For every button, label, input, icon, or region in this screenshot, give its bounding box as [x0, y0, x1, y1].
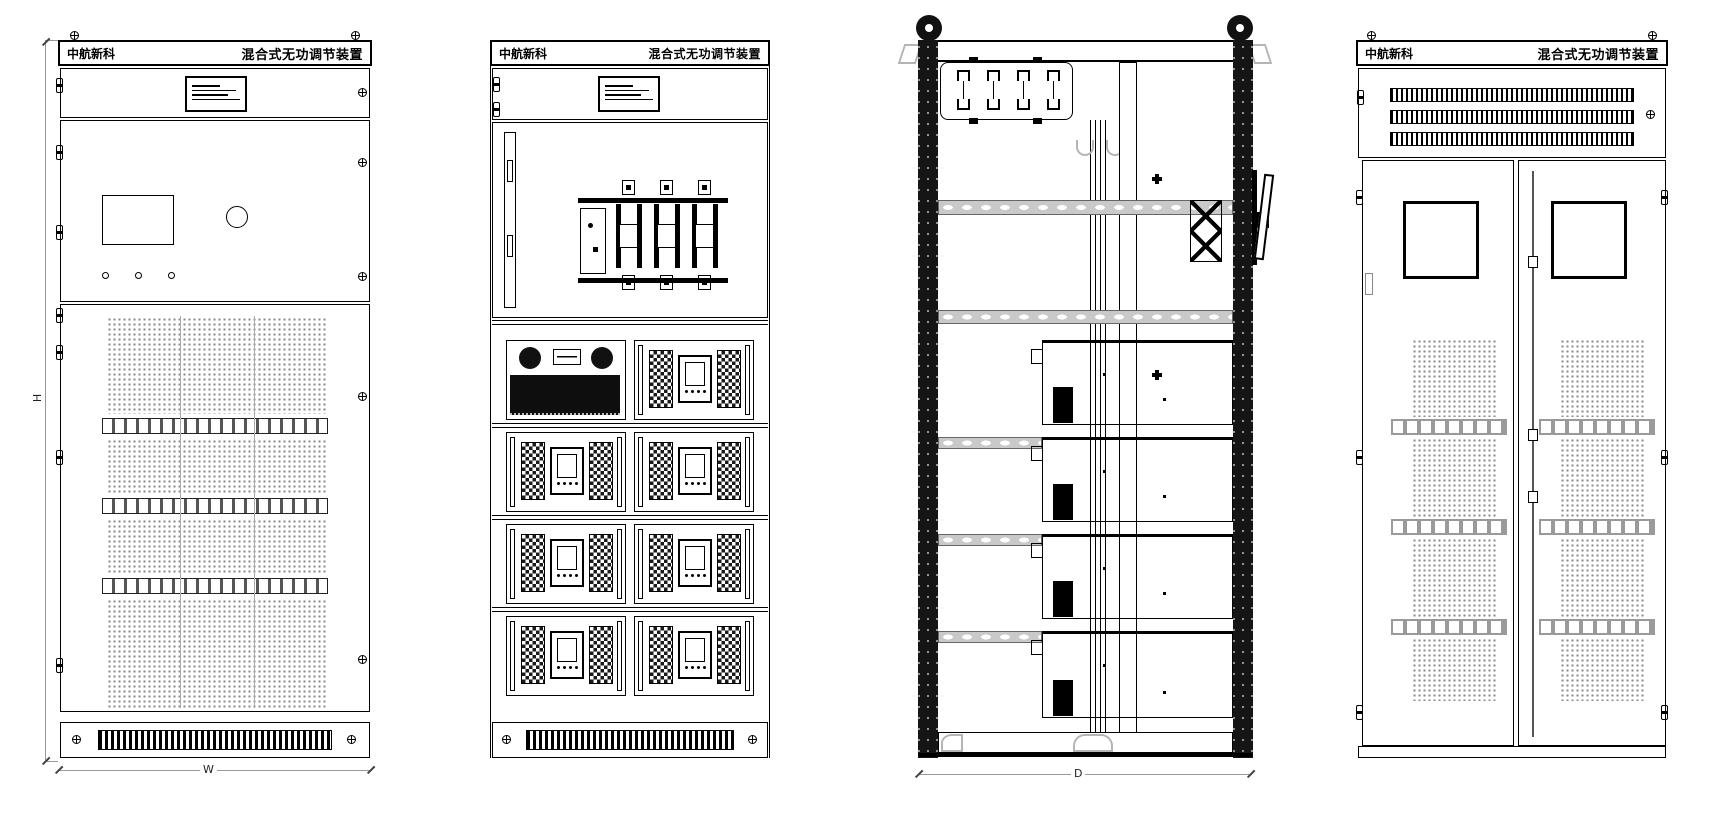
hmi-display: [102, 195, 174, 245]
cabinet-header: 中航新科 混合式无功调节装置: [58, 40, 372, 66]
vent-row: [1390, 88, 1634, 102]
dimension-h-label: H: [32, 391, 44, 405]
dimension-line-h: [45, 40, 46, 762]
mesh-panel: [1411, 437, 1497, 517]
mounting-rail: [938, 631, 1042, 643]
frame-post-front: [918, 40, 938, 758]
screw: [748, 735, 757, 744]
rod-guide: [1528, 256, 1538, 268]
module: [506, 616, 626, 696]
mounting-rail: [938, 310, 1233, 324]
lifting-eye: [916, 15, 942, 41]
dimension-d-label: D: [1071, 768, 1085, 780]
rod-guide: [1528, 491, 1538, 503]
screw: [351, 31, 360, 40]
drawer: [1042, 437, 1233, 522]
screw: [358, 272, 367, 281]
power-module: [506, 340, 626, 420]
shelf: [492, 423, 768, 428]
cabinet-header: 中航新科 混合式无功调节装置: [1356, 40, 1668, 66]
floor-line: [918, 753, 1252, 757]
louver-strip: [1539, 519, 1655, 535]
module: [506, 432, 626, 512]
rear-view: 中航新科 混合式无功调节装置: [1356, 40, 1668, 760]
product-title: 混合式无功调节装置: [241, 44, 363, 63]
louver-strip: [1391, 419, 1507, 435]
screw: [72, 735, 81, 744]
module-vent: [521, 626, 545, 684]
mesh-divider: [180, 316, 181, 708]
bottom-vent: [526, 730, 734, 750]
module: [634, 340, 754, 420]
module-display: [678, 355, 712, 403]
module: [634, 616, 754, 696]
hinge: [493, 77, 500, 92]
shelf: [492, 515, 768, 520]
mesh-divider: [254, 316, 255, 708]
module-display: [678, 539, 712, 587]
screw: [347, 735, 356, 744]
louver-strip: [102, 418, 328, 434]
switch-operator: [580, 208, 606, 274]
module: [506, 524, 626, 604]
door-latch: [1365, 273, 1373, 295]
vent-row: [1390, 110, 1634, 124]
module-vent: [717, 442, 741, 500]
module-vent: [649, 442, 673, 500]
louver-strip: [1539, 619, 1655, 635]
hinge: [1661, 450, 1668, 465]
indicator-led: [102, 272, 109, 279]
louver-strip: [1539, 419, 1655, 435]
louver-strip: [102, 578, 328, 594]
hinge: [56, 225, 63, 240]
lifting-eye: [1227, 15, 1253, 41]
hinge: [1356, 450, 1363, 465]
screw: [358, 158, 367, 167]
indicator-led: [168, 272, 175, 279]
frame-post-rear: [1233, 40, 1253, 758]
side-section-view: D: [905, 14, 1285, 780]
screw: [70, 31, 79, 40]
hinge: [56, 658, 63, 673]
mounting-channel: [504, 132, 516, 308]
front-open-view: 中航新科 混合式无功调节装置: [490, 40, 770, 762]
channel-slot: [507, 235, 513, 257]
base-band: [1358, 746, 1666, 758]
module-display: [678, 447, 712, 495]
vent-row: [1390, 132, 1634, 146]
base-gusset: [1073, 734, 1113, 752]
dimension-tick: [42, 38, 50, 46]
module-vent: [717, 350, 741, 408]
nameplate: [185, 76, 247, 112]
dimension-ext: [45, 761, 58, 762]
mesh-panel: [1411, 537, 1497, 617]
module: [634, 524, 754, 604]
product-title: 混合式无功调节装置: [648, 45, 761, 62]
channel-slot: [507, 160, 513, 182]
drawer: [1042, 631, 1233, 718]
screw: [1648, 31, 1657, 40]
drawer: [1042, 340, 1233, 425]
rear-door-right: [1518, 160, 1666, 746]
rear-door-left: [1362, 160, 1514, 746]
busbar-assembly: [940, 62, 1073, 120]
mesh-panel: [1559, 637, 1645, 701]
dimension-tick: [1247, 770, 1255, 778]
louver-strip: [1391, 519, 1507, 535]
dimension-w-label: W: [200, 764, 217, 776]
screw: [502, 735, 511, 744]
hinge: [56, 308, 63, 323]
mounting-rail: [938, 437, 1042, 449]
module-display: [550, 631, 584, 679]
module-vent: [649, 350, 673, 408]
brand-label: 中航新科: [499, 45, 547, 62]
fuse-pole: [688, 180, 722, 290]
louver-strip: [1391, 619, 1507, 635]
hinge: [1357, 90, 1364, 105]
module-body: [510, 375, 620, 415]
mesh-panel: [1411, 338, 1497, 417]
rod-guide: [1528, 429, 1538, 441]
mesh-panel: [106, 438, 328, 494]
bolt: [1152, 174, 1162, 184]
hinge: [56, 345, 63, 360]
mounting-rail: [938, 534, 1042, 546]
module: [634, 432, 754, 512]
module-vent: [521, 442, 545, 500]
nameplate: [598, 76, 660, 112]
hinge: [56, 450, 63, 465]
drawing-canvas: 中航新科 混合式无功调节装置: [0, 0, 1712, 813]
module-vent: [589, 442, 613, 500]
drawer: [1042, 534, 1233, 619]
fuse-pole: [612, 180, 646, 290]
hinge: [1661, 190, 1668, 205]
module-vent: [589, 626, 613, 684]
screw: [1646, 110, 1655, 119]
shelf: [492, 320, 768, 325]
fan: [591, 347, 613, 369]
hinge: [1661, 705, 1668, 720]
screw: [358, 88, 367, 97]
module-handle: [553, 349, 581, 365]
mounting-rail: [938, 200, 1233, 215]
hinge: [56, 145, 63, 160]
front-closed-view: 中航新科 混合式无功调节装置: [58, 40, 372, 762]
louver-strip: [102, 498, 328, 514]
indicator-led: [135, 272, 142, 279]
module-display: [550, 539, 584, 587]
product-title: 混合式无功调节装置: [1537, 44, 1659, 63]
module-display: [550, 447, 584, 495]
hinge: [1356, 705, 1363, 720]
module-vent: [717, 626, 741, 684]
cabinet-header: 中航新科 混合式无功调节装置: [490, 40, 770, 66]
hinge: [56, 78, 63, 93]
shelf: [492, 607, 768, 612]
mesh-panel: [1559, 537, 1645, 617]
mesh-panel: [1411, 637, 1497, 701]
screw: [358, 655, 367, 664]
screw: [1367, 31, 1376, 40]
brace-bracket: [1190, 200, 1222, 262]
dimension-tick: [367, 766, 375, 774]
module-vent: [649, 626, 673, 684]
mesh-panel: [106, 518, 328, 574]
module-display: [678, 631, 712, 679]
brand-label: 中航新科: [67, 45, 115, 62]
hinge: [493, 102, 500, 117]
fuse-pole: [650, 180, 684, 290]
mesh-panel: [1559, 338, 1645, 417]
module-vent: [717, 534, 741, 592]
door-opening: [1403, 201, 1479, 279]
mesh-panel: [1559, 437, 1645, 517]
base-gusset: [941, 734, 963, 752]
fan: [519, 347, 541, 369]
brand-label: 中航新科: [1365, 45, 1413, 62]
mesh-panel: [106, 316, 328, 414]
door-opening: [1551, 201, 1627, 279]
bottom-vent: [98, 730, 332, 750]
module-vent: [521, 534, 545, 592]
module-vent: [649, 534, 673, 592]
emergency-knob: [226, 206, 248, 228]
mesh-panel: [106, 598, 328, 708]
hinge: [1356, 190, 1363, 205]
screw: [358, 392, 367, 401]
module-vent: [589, 534, 613, 592]
